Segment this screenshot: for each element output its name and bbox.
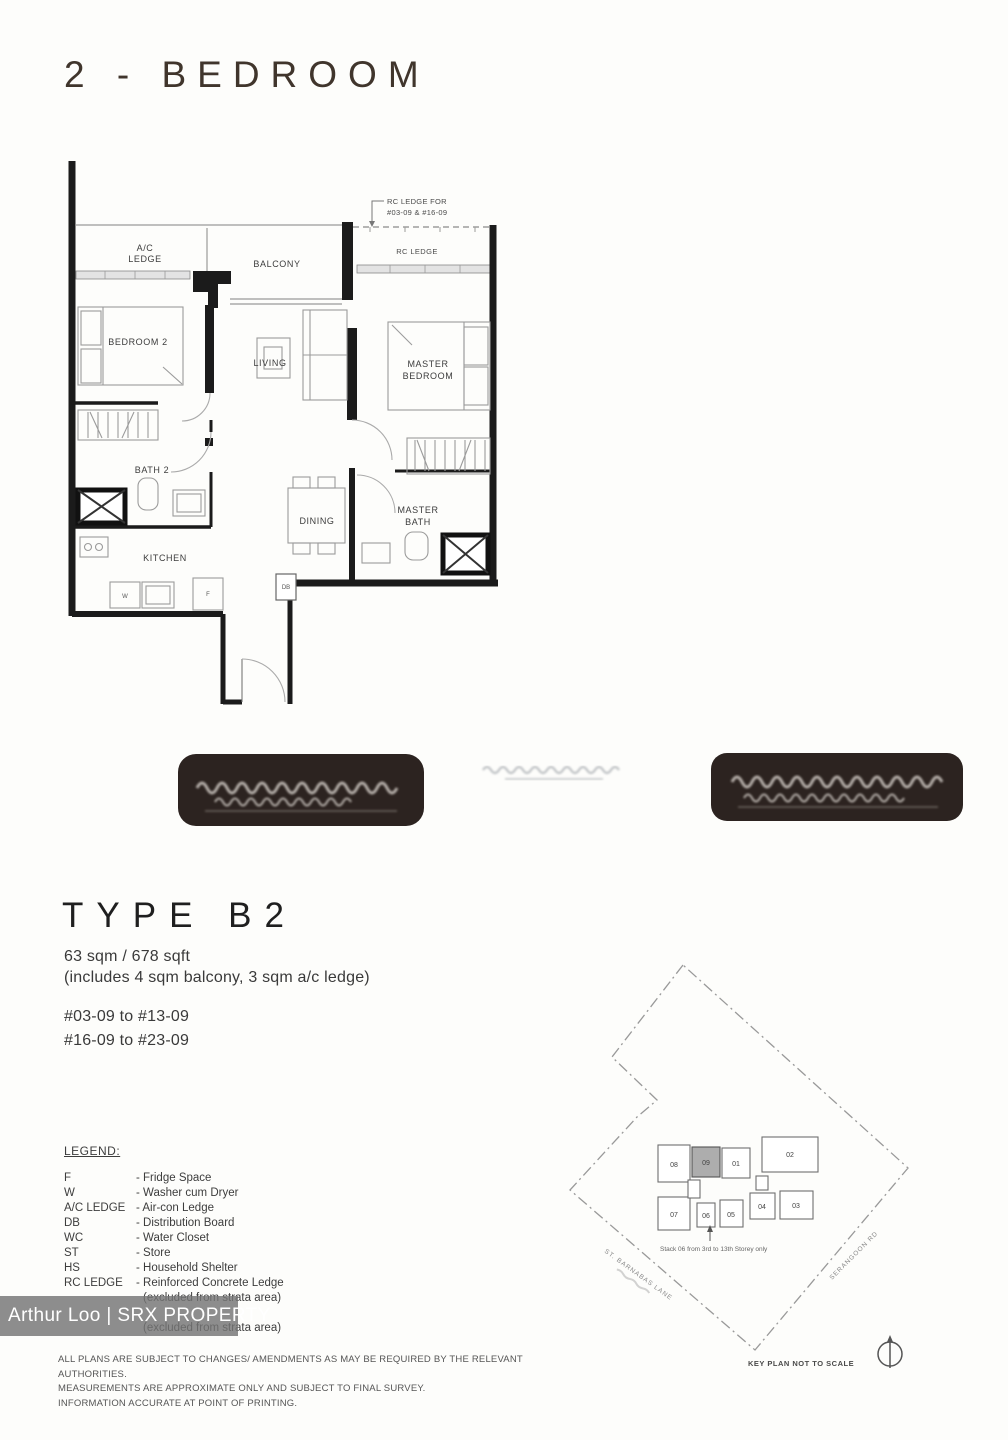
floorplan-sheet: 2 - BEDROOM — [0, 0, 1008, 1440]
master-bedroom-label-1: MASTER — [407, 359, 448, 369]
living-label: LIVING — [253, 358, 286, 368]
master-bath-label-2: BATH — [405, 517, 431, 527]
shaft-boxes — [78, 490, 488, 573]
legend-term: W — [64, 1186, 136, 1201]
legend-row: F- Fridge Space — [64, 1171, 284, 1186]
dash-ticks — [370, 227, 475, 232]
legend-desc: - Washer cum Dryer — [136, 1186, 238, 1201]
road-label-left: ST. BARNABAS LANE — [603, 1248, 674, 1302]
legend-row: ST- Store — [64, 1246, 284, 1261]
master-bedroom-label-2: BEDROOM — [403, 371, 454, 381]
building-blocks — [658, 1137, 818, 1230]
legend-desc: - Reinforced Concrete Ledge — [136, 1276, 284, 1291]
legend-term: RC LEDGE — [64, 1276, 136, 1291]
page-title: 2 - BEDROOM — [64, 54, 430, 96]
bedroom2-label: BEDROOM 2 — [108, 337, 167, 347]
disclaimer-line: MEASUREMENTS ARE APPROXIMATE ONLY AND SU… — [58, 1382, 578, 1397]
disclaimer-line: ALL PLANS ARE SUBJECT TO CHANGES/ AMENDM… — [58, 1353, 578, 1382]
annotation-leader — [372, 201, 384, 223]
legend-desc: - Household Shelter — [136, 1261, 238, 1276]
washer-label: W — [122, 594, 128, 600]
unit-stack-range-1: #03-09 to #13-09 — [64, 1008, 189, 1026]
legend-term: HS — [64, 1261, 136, 1276]
unit-number: 05 — [727, 1212, 735, 1219]
legend-desc: - Distribution Board — [136, 1216, 234, 1231]
key-plan: 08 09 01 02 07 06 05 04 03 Stack 06 from… — [560, 950, 1008, 1420]
ac-ledge-label-2: LEDGE — [128, 254, 162, 264]
unit-number: 06 — [702, 1213, 710, 1220]
legend-row: W- Washer cum Dryer — [64, 1186, 284, 1201]
door-arcs — [171, 393, 395, 702]
balcony-label: BALCONY — [253, 259, 300, 269]
unit-area-note: (includes 4 sqm balcony, 3 sqm a/c ledge… — [64, 969, 370, 987]
floorplan-drawing: RC LEDGE FOR #03-09 & #16-09 A/C LEDGE B… — [60, 155, 505, 715]
legend-heading: LEGEND: — [64, 1144, 284, 1158]
ac-ledge-label-1: A/C — [137, 243, 154, 253]
master-bath-label-1: MASTER — [397, 505, 438, 515]
block-connector — [756, 1176, 768, 1190]
unit-number: 01 — [732, 1161, 740, 1168]
rc-ledge-annotation-line1: RC LEDGE FOR — [387, 197, 447, 206]
unit-type-title: TYPE B2 — [62, 896, 297, 936]
rc-ledge-label: RC LEDGE — [396, 247, 438, 256]
disclaimer-line: INFORMATION ACCURATE AT POINT OF PRINTIN… — [58, 1397, 578, 1412]
annotation-arrow — [369, 221, 375, 227]
legend-desc: - Fridge Space — [136, 1171, 211, 1186]
legend-term: A/C LEDGE — [64, 1201, 136, 1216]
redacted-stamp-right — [708, 750, 966, 824]
faint-center-text — [475, 758, 635, 788]
legend-row: RC LEDGE- Reinforced Concrete Ledge — [64, 1276, 284, 1291]
wall-blocks — [193, 222, 357, 446]
unit-number: 07 — [670, 1212, 678, 1219]
legend-row: WC- Water Closet — [64, 1231, 284, 1246]
keyplan-caption: KEY PLAN NOT TO SCALE — [748, 1359, 854, 1368]
block-connector — [688, 1180, 700, 1198]
legend-term: WC — [64, 1231, 136, 1246]
dining-label: DINING — [299, 516, 334, 526]
legend-term: F — [64, 1171, 136, 1186]
unit-number: 08 — [670, 1162, 678, 1169]
legend-desc: - Water Closet — [136, 1231, 209, 1246]
unit-number: 03 — [792, 1203, 800, 1210]
north-arrow-head — [887, 1335, 893, 1342]
unit-number: 02 — [786, 1152, 794, 1159]
furniture — [78, 307, 490, 610]
legend-row: HS- Household Shelter — [64, 1261, 284, 1276]
unit-stack-range-2: #16-09 to #23-09 — [64, 1032, 189, 1050]
road-label-right: SERANGOON RD — [828, 1230, 879, 1281]
kitchen-label: KITCHEN — [143, 553, 187, 563]
db-label: DB — [282, 585, 290, 591]
legend-row: DB- Distribution Board — [64, 1216, 284, 1231]
legend-desc: - Air-con Ledge — [136, 1201, 214, 1216]
bath2-label: BATH 2 — [135, 465, 169, 475]
fridge-label: F — [206, 592, 210, 598]
legend-term: DB — [64, 1216, 136, 1231]
unit-number: 04 — [758, 1204, 766, 1211]
rc-ledge-annotation-line2: #03-09 & #16-09 — [387, 208, 447, 217]
redacted-stamp-left — [175, 750, 427, 830]
legend-term: ST — [64, 1246, 136, 1261]
stack-note: Stack 06 from 3rd to 13th Storey only — [660, 1246, 768, 1253]
legend-row: A/C LEDGE- Air-con Ledge — [64, 1201, 284, 1216]
illegible-scribble — [483, 767, 619, 779]
unit-area: 63 sqm / 678 sqft — [64, 948, 190, 966]
legend-desc: - Store — [136, 1246, 171, 1261]
watermark-banner: Arthur Loo | SRX PROPERTY — [0, 1296, 238, 1336]
unit-number-highlighted: 09 — [702, 1160, 710, 1167]
disclaimer: ALL PLANS ARE SUBJECT TO CHANGES/ AMENDM… — [58, 1353, 578, 1411]
